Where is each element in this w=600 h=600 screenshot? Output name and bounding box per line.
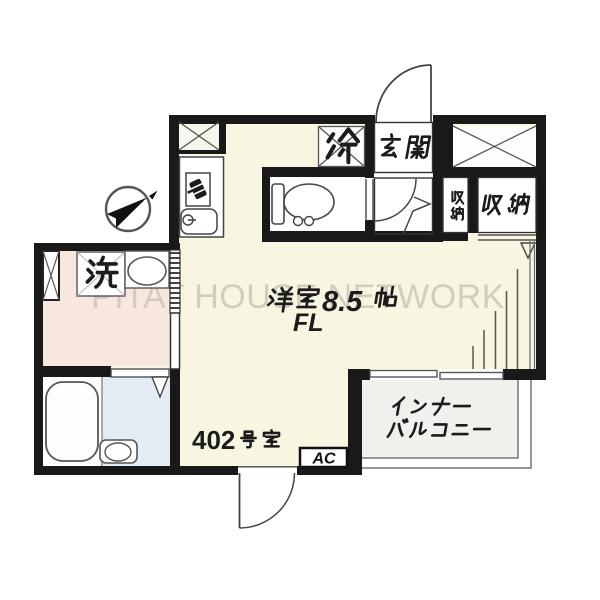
svg-text:AC: AC — [311, 451, 336, 468]
svg-text:8.5: 8.5 — [322, 286, 363, 318]
svg-text:402: 402 — [192, 425, 235, 455]
svg-text:FL: FL — [293, 309, 324, 337]
